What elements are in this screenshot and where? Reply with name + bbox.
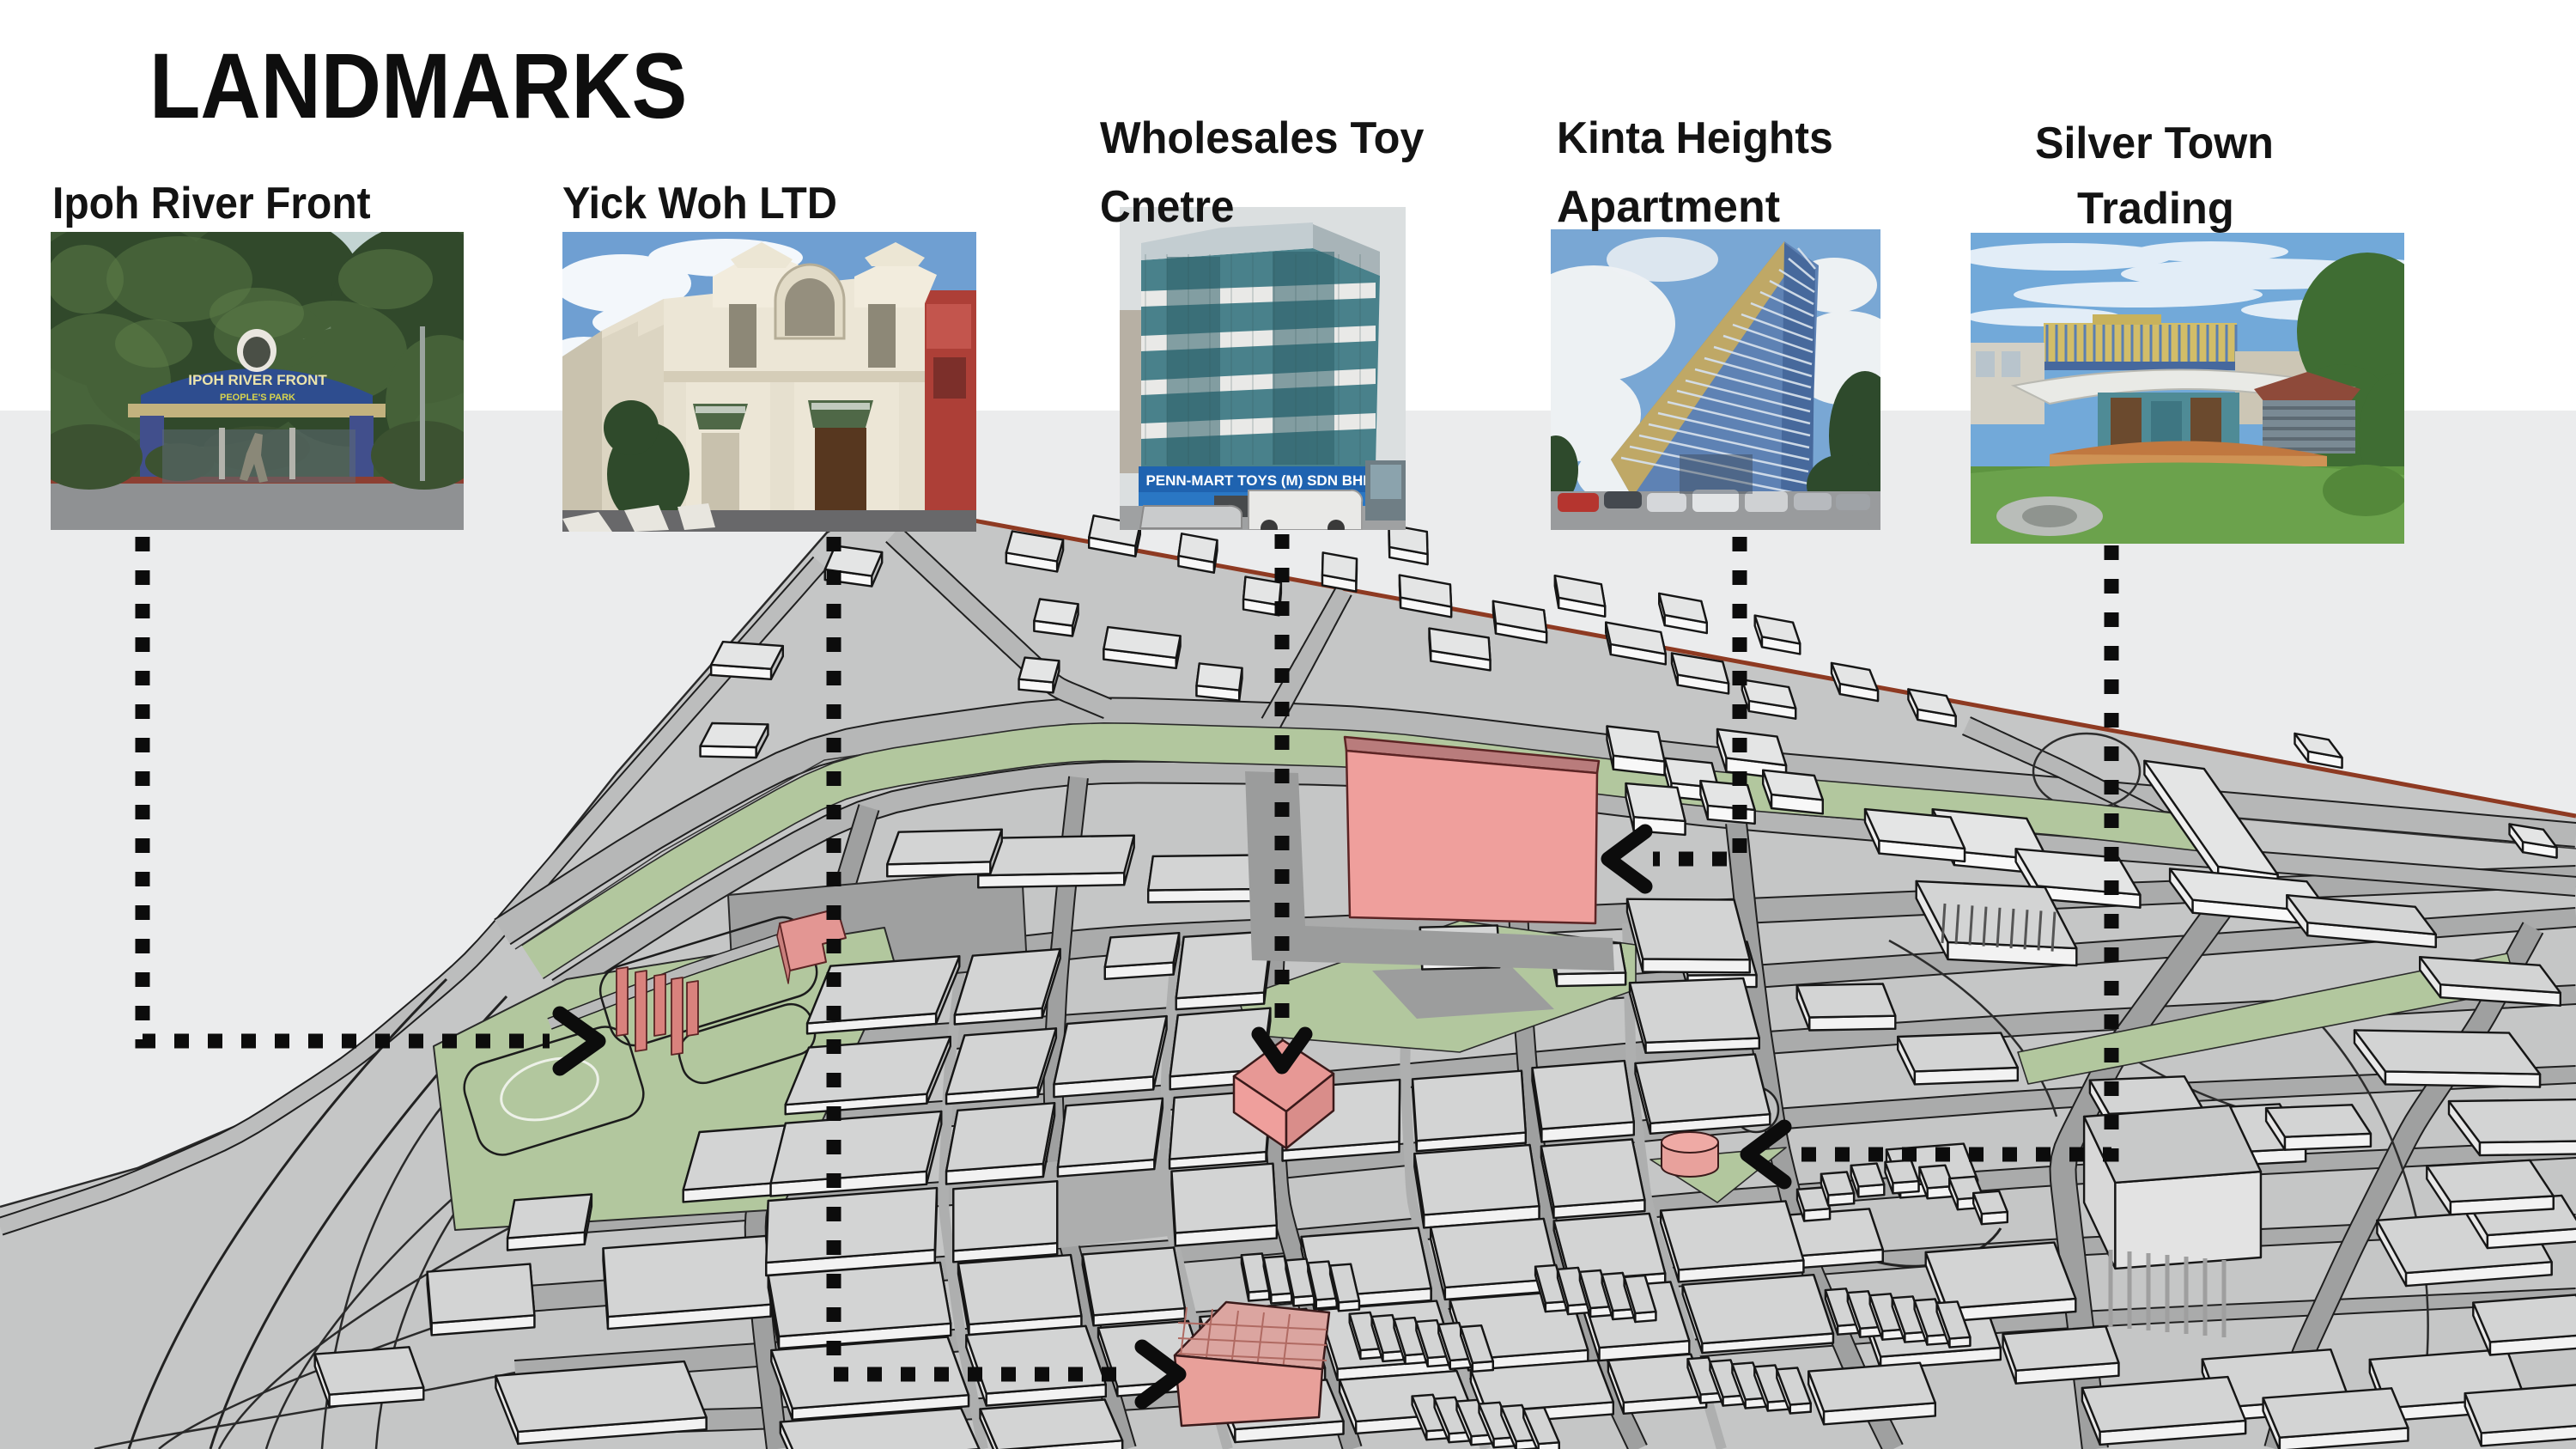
svg-text:PEOPLE'S PARK: PEOPLE'S PARK [220, 393, 295, 403]
svg-text:PENN-MART TOYS (M) SDN BHD: PENN-MART TOYS (M) SDN BHD [1145, 472, 1373, 489]
svg-text:IPOH RIVER FRONT: IPOH RIVER FRONT [188, 372, 327, 388]
